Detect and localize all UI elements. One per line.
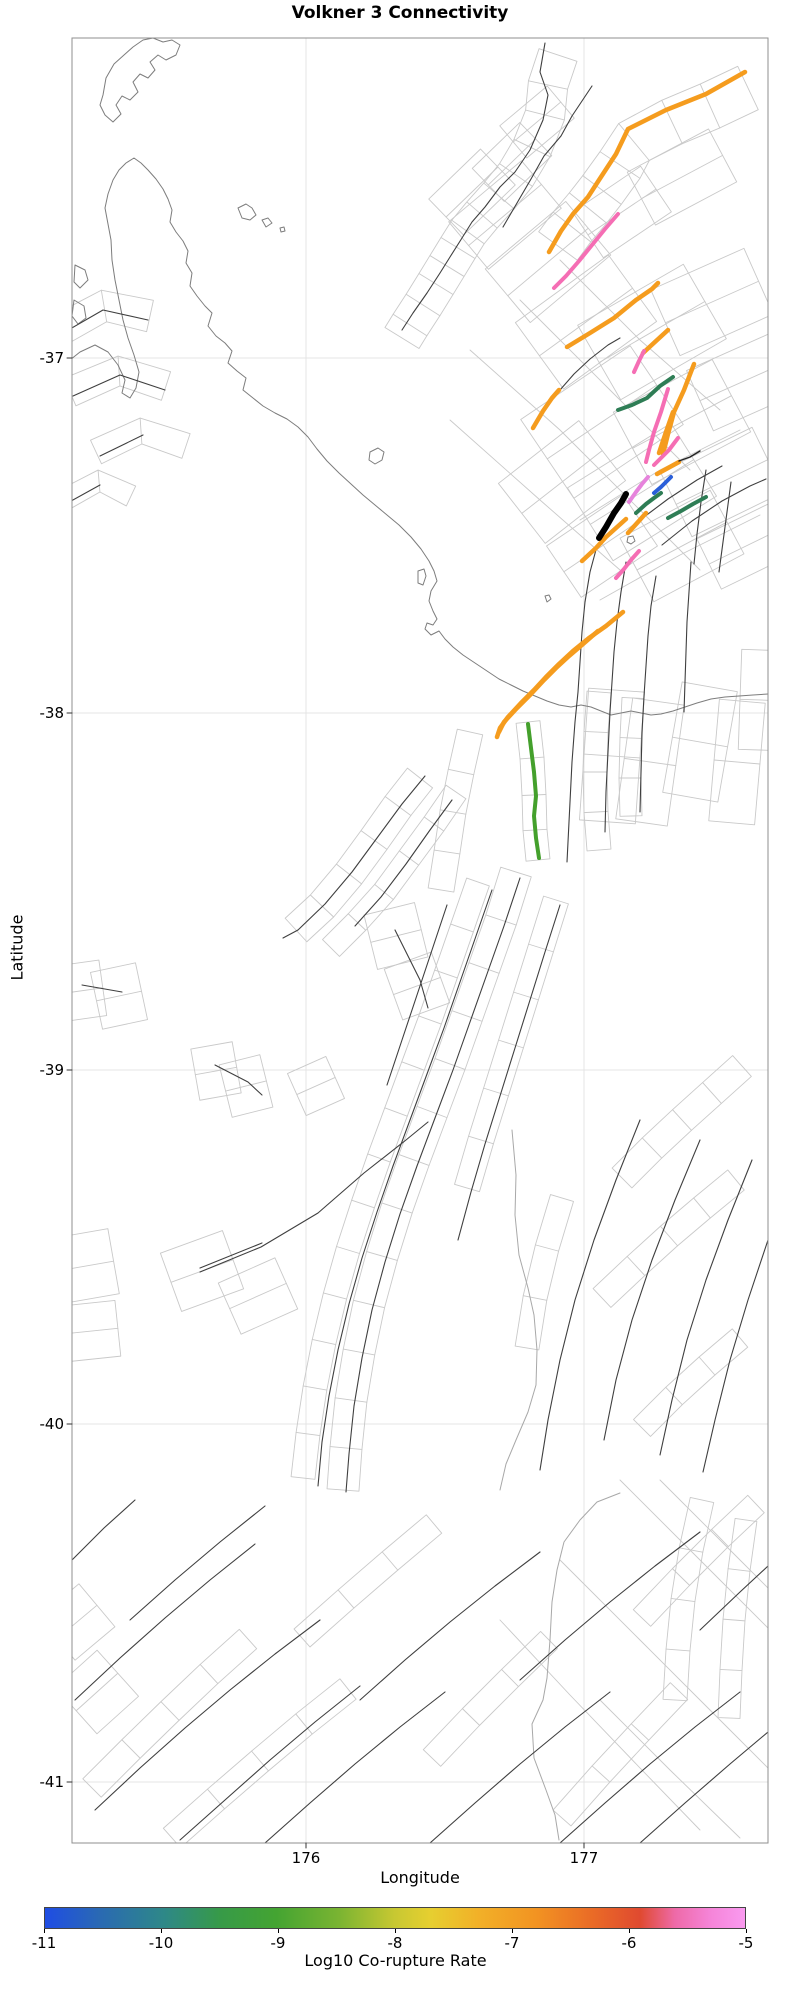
y-tick-label: -41	[0, 1773, 64, 1791]
fault-ladder-rung	[523, 1296, 547, 1301]
fault-ladder-rung	[323, 1293, 346, 1299]
fault-ladder-rung	[140, 418, 142, 444]
fault-ladder-rung	[402, 1062, 425, 1070]
fault-trace	[82, 985, 122, 992]
fault-quad-rung	[665, 281, 758, 322]
fault-ladder	[163, 1679, 356, 1848]
fault-ladder-rung	[430, 256, 464, 277]
colorbar-tick-label: -7	[488, 1934, 536, 1952]
fault-ladder-rung	[303, 1386, 327, 1390]
fault-ladder-rung	[484, 1088, 509, 1096]
colorbar-tick-mark	[44, 1929, 45, 1933]
y-axis-label: Latitude	[8, 888, 27, 1008]
fault-ladder-rung	[583, 176, 622, 205]
fault-ladder-rung	[337, 1247, 360, 1254]
colorbar-tick-label: -9	[254, 1934, 302, 1952]
island-outline	[72, 300, 86, 324]
fault-trace	[604, 1140, 700, 1440]
fault-ladder-rung	[620, 738, 642, 739]
fault-ladder-rung	[419, 1016, 442, 1024]
fault-ladder	[516, 721, 550, 862]
fault-ladder-rung	[312, 1339, 335, 1344]
fault-ladder-rung	[452, 1011, 482, 1022]
fault-quad-rung	[66, 1328, 118, 1333]
fault-light-line	[560, 1560, 768, 1768]
fault-ladder-rung	[529, 944, 554, 952]
fault-ladder-rung	[385, 796, 411, 815]
colorbar-tick-mark	[746, 1929, 747, 1933]
fault-quad-rung	[226, 1081, 267, 1091]
fault-quad-rung	[539, 288, 632, 356]
island-outline	[238, 204, 256, 220]
fault-ladder-rung	[367, 1252, 398, 1261]
fault-ladder-rung	[535, 1245, 558, 1251]
y-tick-label: -40	[0, 1415, 64, 1433]
fault-ladder	[553, 1683, 688, 1826]
fault-ladder-rung	[343, 1349, 374, 1355]
fault-ladder-rung	[296, 1432, 320, 1435]
fault-ladder-rung	[435, 970, 458, 978]
fault-trace	[346, 878, 520, 1492]
fault-quad-rung	[394, 977, 441, 994]
fault-ladder-rung	[467, 202, 497, 228]
fault-quad-rung	[58, 1261, 113, 1271]
colorbar-tick-mark	[395, 1929, 396, 1933]
fault-quad-rung	[700, 363, 784, 400]
fault-ladder	[612, 1056, 751, 1188]
fault-ladder-rung	[336, 864, 361, 884]
x-axis-label: Longitude	[72, 1868, 768, 1887]
fault-quad-rung	[230, 1283, 287, 1308]
fault-trace	[605, 562, 626, 832]
fault-ladder-rung	[584, 811, 608, 812]
figure: Volkner 3 Connectivity Longitude Latitud…	[0, 0, 800, 1989]
fault-ladder-rung	[584, 731, 608, 732]
fault-ladder	[539, 66, 759, 260]
fault-ladder-rung	[666, 1649, 690, 1651]
fault-ladder-rung	[385, 1108, 408, 1116]
fault-ladder-rung	[627, 1256, 645, 1275]
figure-title: Volkner 3 Connectivity	[0, 3, 800, 23]
fault-ladder-rung	[252, 1751, 269, 1771]
fault-quad-rung	[641, 155, 722, 198]
highlight-co-rupture-orange	[567, 283, 658, 347]
fault-ladder-rung	[448, 769, 473, 774]
island-outline	[627, 536, 635, 544]
colorbar-label: Log10 Co-rupture Rate	[44, 1951, 747, 1970]
fault-ladder-rung	[122, 1740, 140, 1759]
fault-ladder-rung	[528, 81, 567, 89]
coastline-south	[500, 1130, 537, 1490]
island-outline	[369, 448, 384, 464]
fault-ladder-rung	[514, 992, 539, 1000]
fault-ladder-rung	[712, 1529, 729, 1546]
fault-light-line	[600, 515, 760, 600]
colorbar-tick-mark	[629, 1929, 630, 1933]
fault-ladder-rung	[660, 1226, 677, 1246]
fault-trace	[520, 1532, 700, 1680]
fault-quad-rung	[57, 1605, 97, 1638]
fault-light-line	[600, 1700, 740, 1838]
fault-ladder-rung	[406, 294, 440, 315]
fault-trace	[560, 1692, 740, 1843]
island-outline	[262, 218, 272, 227]
fault-ladder-rung	[361, 831, 387, 850]
y-tick-label: -38	[0, 704, 64, 722]
plot-border	[72, 38, 768, 1843]
fault-ladder-rung	[728, 1569, 750, 1572]
highlight-co-rupture-darkgreen	[636, 493, 661, 513]
fault-ladder-rung	[417, 1106, 447, 1117]
fault-trace	[703, 1240, 768, 1472]
fault-ladder-rung	[352, 1200, 375, 1208]
coastline-south	[532, 1493, 620, 1840]
fault-ladder-rung	[592, 1766, 610, 1782]
fault-quad-rung	[584, 754, 640, 758]
fault-ladder-rung	[375, 884, 394, 899]
island-outline	[280, 227, 285, 232]
fault-ladder-rung	[435, 1059, 465, 1070]
fault-quad-rung	[57, 988, 103, 994]
colorbar-tick-label: -11	[20, 1934, 68, 1952]
island-outline	[100, 38, 180, 122]
fault-ladder-rung	[200, 1664, 218, 1683]
map-canvas	[0, 0, 800, 1989]
fault-ladder	[83, 1629, 257, 1797]
island-outline	[74, 265, 88, 288]
fault-quad-rung	[714, 760, 760, 764]
fault-ladder-rung	[399, 851, 418, 865]
fault-trace	[200, 1243, 262, 1268]
fault-ladder	[718, 1518, 757, 1718]
fault-trace	[395, 930, 428, 1008]
fault-trace	[72, 1500, 135, 1560]
island-outline	[418, 569, 426, 585]
fault-ladder	[385, 49, 577, 349]
fault-ladder-rung	[382, 1203, 412, 1213]
fault-ladder-rung	[462, 1709, 479, 1726]
fault-ladder-rung	[118, 356, 120, 386]
fault-ladder-rung	[600, 152, 640, 179]
fault-ladder-rung	[499, 1040, 524, 1048]
highlight-co-rupture-orange	[643, 330, 668, 353]
colorbar-tick-label: -6	[605, 1934, 653, 1952]
fault-quad-rung	[740, 699, 780, 700]
fault-ladder-rung	[720, 1669, 742, 1670]
highlight-co-rupture-orange	[497, 612, 623, 737]
coastline	[60, 158, 768, 715]
highlight-co-rupture-orange	[499, 631, 598, 732]
fault-trace	[684, 562, 691, 712]
colorbar-tick-mark	[161, 1929, 162, 1933]
fault-ladder-rung	[631, 1724, 648, 1740]
fault-trace	[100, 435, 143, 456]
fault-trace	[265, 1692, 445, 1843]
fault-ladder-rung	[502, 1669, 519, 1686]
fault-ladder-rung	[441, 237, 475, 258]
fault-ladder-rung	[98, 470, 100, 492]
fault-ladder-rung	[101, 290, 106, 322]
fault-trace	[567, 546, 597, 862]
fault-trace	[75, 1544, 255, 1700]
fault-ladder-rung	[353, 1300, 384, 1307]
fault-ladder-rung	[335, 1398, 367, 1402]
fault-ladder-rung	[207, 1789, 224, 1809]
fault-ladder-rung	[642, 1138, 661, 1158]
fault-quad-rung	[547, 385, 656, 459]
colorbar-tick-label: -5	[722, 1934, 770, 1952]
fault-ladder	[633, 1495, 764, 1626]
fault-trace	[640, 576, 656, 812]
fault-quad-rung	[469, 184, 542, 245]
y-tick-label: -39	[0, 1061, 64, 1079]
colorbar-tick-label: -10	[137, 1934, 185, 1952]
fault-trace	[360, 1552, 540, 1700]
fault-ladder-rung	[399, 1155, 429, 1166]
fault-quad-rung	[709, 528, 783, 564]
fault-ladder-rung	[330, 1447, 362, 1450]
fault-ladder-rung	[451, 924, 474, 932]
x-tick-label: 176	[284, 1849, 328, 1867]
highlight-co-rupture-pink	[616, 551, 639, 578]
fault-trace	[540, 1120, 640, 1470]
fault-light-line	[620, 1480, 768, 1628]
fault-ladder	[423, 1631, 557, 1766]
fault-ladder-rung	[419, 274, 453, 295]
fault-ladder-rung	[703, 1083, 722, 1104]
fault-ladder-rung	[673, 1110, 692, 1131]
fault-ladder-rung	[469, 1136, 494, 1144]
fault-ladder-rung	[699, 1357, 715, 1375]
colorbar-tick-mark	[278, 1929, 279, 1933]
fault-quad-rung	[297, 1077, 335, 1094]
fault-trace	[694, 470, 706, 564]
y-tick-label: -37	[0, 349, 64, 367]
fault-ladder-rung	[694, 1198, 711, 1218]
fault-ladder-rung	[161, 1702, 179, 1721]
fault-trace	[200, 1122, 428, 1272]
island-outline	[545, 595, 551, 602]
fault-ladder	[634, 1329, 748, 1437]
fault-quad-rung	[672, 737, 727, 747]
highlight-co-rupture-violet	[629, 477, 648, 502]
fault-ladder-rung	[382, 1552, 398, 1570]
colorbar	[44, 1907, 746, 1929]
fault-ladder	[55, 470, 136, 512]
fault-ladder	[428, 729, 483, 892]
highlight-co-rupture-green	[528, 724, 539, 858]
fault-ladder-rung	[723, 1619, 745, 1621]
fault-ladder	[294, 1515, 442, 1647]
colorbar-tick-mark	[512, 1929, 513, 1933]
fault-trace	[130, 1506, 265, 1620]
fault-ladder-rung	[469, 963, 499, 974]
fault-ladder-rung	[434, 850, 460, 854]
fault-ladder-rung	[486, 915, 516, 925]
fault-trace	[283, 776, 425, 938]
colorbar-tick-label: -8	[371, 1934, 419, 1952]
fault-light-line	[500, 1620, 700, 1830]
fault-ladder-rung	[338, 1590, 354, 1608]
fault-quad-rung	[599, 302, 705, 363]
x-tick-label: 177	[562, 1849, 606, 1867]
